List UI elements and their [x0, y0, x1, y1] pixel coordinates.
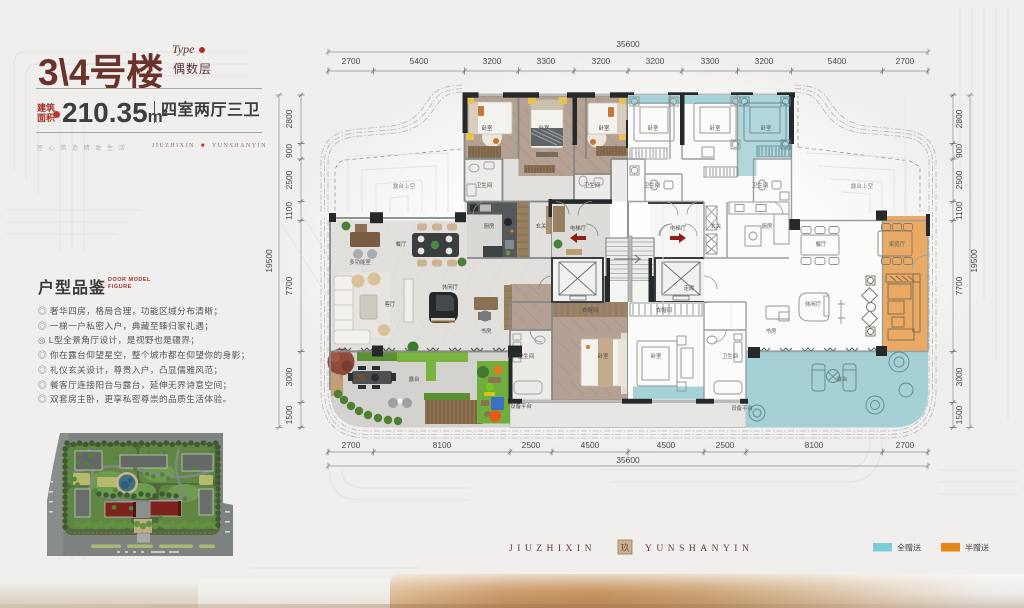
svg-text:卫生间: 卫生间: [752, 181, 768, 189]
svg-text:2700: 2700: [896, 56, 915, 66]
svg-text:900: 900: [954, 144, 964, 158]
svg-text:家庭厅: 家庭厅: [889, 240, 906, 248]
svg-text:卫生间: 卫生间: [518, 352, 534, 360]
svg-text:全赠送: 全赠送: [897, 543, 921, 553]
svg-text:露台: 露台: [837, 375, 848, 383]
svg-text:1500: 1500: [284, 405, 294, 424]
svg-text:1500: 1500: [954, 405, 964, 424]
svg-text:电梯厅: 电梯厅: [670, 224, 687, 232]
svg-text:8100: 8100: [433, 440, 452, 450]
svg-text:JIUZHIXIN: JIUZHIXIN: [509, 544, 596, 554]
svg-text:3300: 3300: [537, 56, 556, 66]
svg-text:1100: 1100: [954, 202, 964, 220]
svg-text:卫生间: 卫生间: [476, 181, 492, 189]
svg-text:卧室: 卧室: [539, 124, 550, 132]
svg-text:2700: 2700: [342, 56, 361, 66]
svg-text:玄关: 玄关: [536, 222, 547, 230]
svg-text:3000: 3000: [284, 367, 294, 386]
svg-text:玖: 玖: [620, 542, 629, 553]
svg-text:3200: 3200: [483, 56, 502, 66]
svg-text:休闲厅: 休闲厅: [805, 300, 822, 308]
svg-text:半赠送: 半赠送: [965, 543, 989, 553]
svg-text:卧室: 卧室: [482, 124, 493, 132]
svg-text:设备平台: 设备平台: [731, 404, 753, 412]
svg-text:2500: 2500: [522, 440, 541, 450]
svg-text:7700: 7700: [284, 276, 294, 295]
svg-text:卫生间: 卫生间: [584, 181, 600, 189]
svg-text:休闲厅: 休闲厅: [442, 283, 459, 291]
svg-text:走廊: 走廊: [684, 284, 695, 292]
svg-text:书房: 书房: [481, 327, 492, 335]
svg-text:露台上空: 露台上空: [393, 182, 416, 190]
svg-text:1100: 1100: [284, 202, 294, 220]
svg-text:3300: 3300: [701, 56, 720, 66]
svg-text:卫生间: 卫生间: [722, 352, 738, 360]
svg-text:厨房: 厨房: [762, 222, 773, 230]
svg-text:2500: 2500: [716, 440, 735, 450]
svg-text:4500: 4500: [657, 440, 676, 450]
svg-text:4500: 4500: [581, 440, 600, 450]
svg-text:19500: 19500: [264, 249, 274, 273]
svg-text:卧室: 卧室: [598, 352, 609, 360]
svg-text:卧室: 卧室: [599, 124, 610, 132]
svg-text:卧室: 卧室: [710, 124, 721, 132]
svg-text:3200: 3200: [592, 56, 611, 66]
svg-text:多功能室: 多功能室: [349, 258, 371, 266]
svg-text:35600: 35600: [616, 39, 640, 49]
svg-text:900: 900: [284, 144, 294, 158]
svg-text:卧室: 卧室: [648, 124, 659, 132]
svg-text:2700: 2700: [896, 440, 915, 450]
svg-text:3000: 3000: [954, 367, 964, 386]
svg-text:8100: 8100: [805, 440, 824, 450]
svg-text:书房: 书房: [766, 327, 777, 335]
svg-text:2800: 2800: [954, 109, 964, 128]
svg-text:电梯厅: 电梯厅: [570, 224, 587, 232]
svg-text:设备平台: 设备平台: [510, 402, 532, 410]
svg-text:5400: 5400: [828, 56, 847, 66]
svg-text:餐厅: 餐厅: [816, 240, 827, 248]
svg-text:2500: 2500: [284, 170, 294, 189]
svg-text:35600: 35600: [616, 455, 640, 465]
svg-text:露台上空: 露台上空: [851, 182, 874, 190]
svg-text:餐厅: 餐厅: [396, 240, 407, 248]
svg-text:2700: 2700: [342, 440, 361, 450]
svg-text:卫生间: 卫生间: [644, 181, 660, 189]
svg-text:YUNSHANYIN: YUNSHANYIN: [645, 544, 753, 554]
svg-text:5400: 5400: [410, 56, 429, 66]
svg-text:厨房: 厨房: [484, 222, 495, 230]
svg-text:卧室: 卧室: [651, 352, 662, 360]
svg-text:露台: 露台: [409, 375, 420, 383]
svg-text:衣帽间: 衣帽间: [582, 306, 598, 314]
svg-text:2800: 2800: [284, 109, 294, 128]
svg-text:衣帽间: 衣帽间: [656, 306, 672, 314]
svg-text:客厅: 客厅: [385, 300, 396, 308]
svg-text:7700: 7700: [954, 276, 964, 295]
svg-text:2500: 2500: [954, 170, 964, 189]
svg-text:卧室: 卧室: [761, 124, 772, 132]
svg-text:3200: 3200: [755, 56, 774, 66]
svg-text:玄关: 玄关: [711, 222, 722, 230]
svg-text:3200: 3200: [646, 56, 665, 66]
svg-text:19500: 19500: [969, 249, 979, 273]
